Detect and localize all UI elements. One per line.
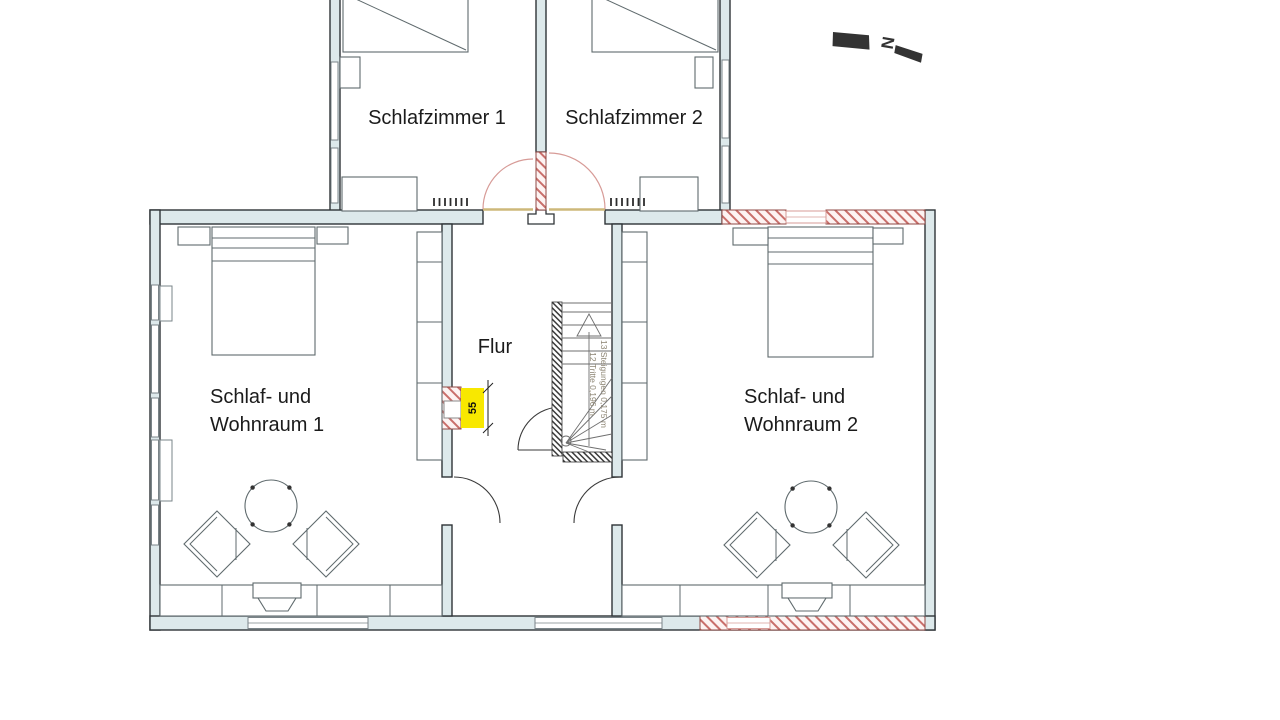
- hatched-column: [536, 152, 546, 210]
- window-sz2-b: [722, 146, 729, 203]
- wardrobe-w2: [622, 232, 647, 460]
- window-sz1-b: [331, 148, 338, 203]
- furniture-schlafzimmer-1: [340, 0, 468, 211]
- staircase: 13 Steigungen 0,175 m 12 Tritte 0,196 m: [552, 302, 612, 462]
- floor-plan-svg: 13 Steigungen 0,175 m 12 Tritte 0,196 m: [0, 0, 1280, 720]
- bed-w1: [212, 227, 315, 355]
- door-swing-sz1: [483, 159, 533, 209]
- label-schlafzimmer-2: Schlafzimmer 2: [565, 107, 703, 129]
- window-sz2-a: [722, 60, 729, 138]
- partition-flur-right: [612, 224, 622, 477]
- furniture-schlafzimmer-2: [592, 0, 718, 211]
- bed-sz2: [592, 0, 718, 52]
- floor-plan: 13 Steigungen 0,175 m 12 Tritte 0,196 m: [0, 0, 1280, 720]
- dimension-value: 55: [467, 402, 479, 414]
- label-wohnraum-2-line2: Wohnraum 2: [744, 414, 858, 436]
- bed-w2: [768, 227, 873, 357]
- counter-w2: [622, 585, 925, 616]
- door-swing-wohnraum1: [454, 477, 500, 523]
- label-wohnraum-1-line1: Schlaf- und: [210, 386, 311, 408]
- window-left-4: [152, 440, 159, 500]
- window-left-1: [152, 285, 159, 320]
- wall-bedroom-divider: [536, 0, 546, 152]
- closet-sz2: [640, 177, 698, 211]
- armchair-w1-right: [293, 511, 359, 577]
- door-swing-wohnraum2: [574, 477, 620, 523]
- door-swing-sz2: [549, 153, 605, 209]
- label-wohnraum-2-line1: Schlaf- und: [744, 386, 845, 408]
- closet-sz1: [342, 177, 417, 211]
- wall-right: [925, 210, 935, 630]
- wall-top-left-segment: [150, 210, 483, 224]
- nightstand-w2-right: [873, 228, 903, 244]
- label-schlafzimmer-1: Schlafzimmer 1: [368, 107, 506, 129]
- stair-bottom-edge: [563, 452, 612, 462]
- door-pier: [528, 210, 554, 224]
- label-wohnraum-1-line2: Wohnraum 1: [210, 414, 324, 436]
- window-sill-1: [160, 286, 172, 321]
- stub-niche: [444, 401, 461, 418]
- label-flur: Flur: [478, 336, 513, 358]
- armchair-w1-left: [184, 511, 250, 577]
- north-label: N: [877, 35, 898, 50]
- wall-top-right-segment: [605, 210, 722, 224]
- nightstand-w2-left: [733, 228, 768, 245]
- nightstand-sz1: [340, 57, 360, 88]
- hatched-wall-top-a: [722, 210, 786, 224]
- north-arrow: N: [830, 27, 924, 63]
- radiator-sz1: [434, 198, 467, 206]
- dimension-marker: 55: [461, 380, 493, 436]
- bed-sz1: [343, 0, 468, 52]
- hatched-wall-top-b: [826, 210, 925, 224]
- nightstand-w1-left: [178, 227, 210, 245]
- nightstand-w1-right: [317, 227, 348, 244]
- window-left-2: [152, 325, 159, 393]
- partition-flur-left: [442, 224, 452, 477]
- north-arrow-bar-right: [893, 45, 923, 63]
- window-left-3: [152, 398, 159, 437]
- stair-side-wall: [552, 302, 562, 456]
- armchair-w2-right: [833, 512, 899, 578]
- partition-flur-right-stub: [612, 525, 622, 616]
- radiator-sz2: [611, 198, 644, 206]
- window-sill-2: [160, 440, 172, 501]
- stair-note-line2: 12 Tritte 0,196 m: [588, 352, 598, 416]
- stair-note-line1: 13 Steigungen 0,175 m: [599, 340, 609, 428]
- nightstand-sz2: [695, 57, 713, 88]
- window-sz1-a: [331, 62, 338, 140]
- north-arrow-bar-left: [831, 29, 872, 53]
- window-left-5: [152, 505, 159, 545]
- wardrobe-w1: [417, 232, 442, 460]
- partition-flur-left-stub: [442, 525, 452, 616]
- armchair-w2-left: [724, 512, 790, 578]
